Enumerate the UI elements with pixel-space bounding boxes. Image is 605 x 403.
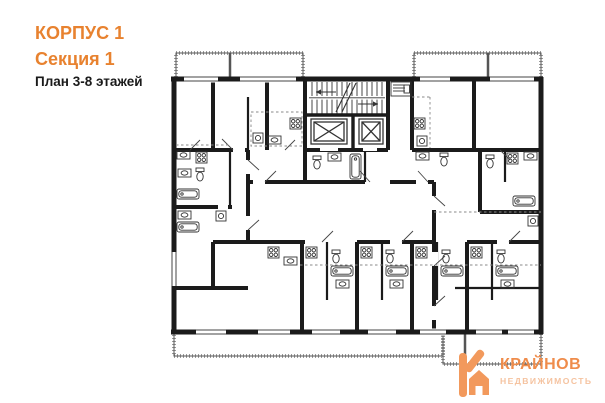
title-block: КОРПУС 1 Секция 1 План 3-8 этажей: [35, 24, 143, 89]
sink-icon: [501, 280, 514, 288]
logo-name: КРАЙНОВ: [500, 357, 592, 373]
sink-icon: [178, 211, 191, 219]
stove-icon: [471, 247, 482, 258]
washer-icon: [417, 136, 427, 146]
bathtub-icon: [177, 222, 199, 232]
building-title: КОРПУС 1: [35, 24, 143, 42]
washer-icon: [253, 133, 263, 143]
washer-icon: [216, 211, 226, 221]
toilet-icon: [442, 250, 450, 263]
sink-icon: [390, 280, 403, 288]
sink-icon: [177, 151, 190, 159]
stove-icon: [290, 118, 301, 129]
page: { "header": { "building": "КОРПУС 1", "s…: [0, 0, 605, 403]
toilet-icon: [196, 168, 204, 181]
company-logo: КРАЙНОВ НЕДВИЖИМОСТЬ: [457, 349, 603, 401]
bathtub-icon: [331, 266, 353, 276]
toilet-icon: [332, 250, 340, 263]
sink-icon: [284, 257, 297, 265]
bathtub-icon: [177, 189, 199, 199]
plan-subtitle: План 3-8 этажей: [35, 75, 143, 89]
staircase-icon: [309, 82, 385, 114]
sink-icon: [524, 152, 537, 160]
section-title: Секция 1: [35, 50, 143, 68]
stove-icon: [196, 152, 207, 163]
bathtub-icon: [386, 266, 408, 276]
bathtub-icon: [441, 266, 463, 276]
sink-icon: [416, 152, 429, 160]
toilet-icon: [313, 156, 321, 169]
toilet-icon: [440, 153, 448, 166]
toilet-icon: [386, 250, 394, 263]
stove-icon: [361, 247, 372, 258]
partition-walls: [230, 97, 541, 300]
toilet-icon: [486, 155, 494, 168]
sink-icon: [336, 280, 349, 288]
elevator-icon: [305, 115, 388, 151]
stove-icon: [268, 247, 279, 258]
toilet-icon: [497, 250, 505, 263]
sink-icon: [178, 169, 191, 177]
sink-icon: [328, 153, 341, 161]
logo-text: КРАЙНОВ НЕДВИЖИМОСТЬ: [494, 349, 592, 386]
bathtub-icon: [513, 196, 535, 206]
stove-icon: [306, 247, 317, 258]
washer-icon: [528, 216, 538, 226]
electrical-panel-icon: [391, 82, 411, 96]
stove-icon: [416, 247, 427, 258]
sink-icon: [268, 136, 281, 144]
stove-icon: [414, 118, 425, 129]
bathtub-icon: [496, 266, 518, 276]
krainov-logo-icon: [457, 349, 494, 399]
bathtub-icon: [350, 154, 361, 179]
logo-subtitle: НЕДВИЖИМОСТЬ: [500, 377, 592, 386]
